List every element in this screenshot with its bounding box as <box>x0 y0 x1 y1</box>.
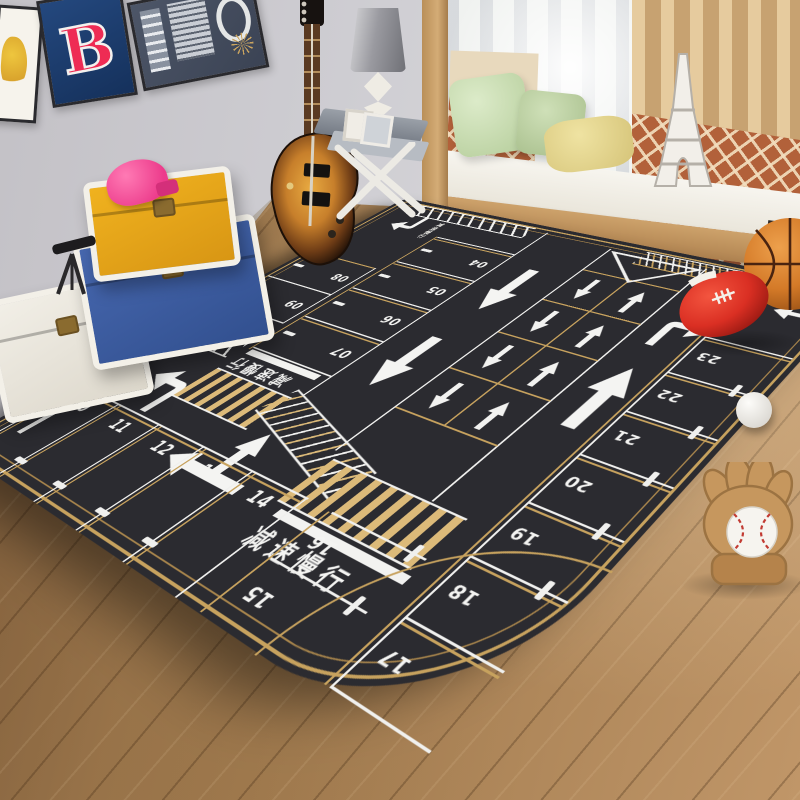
table-x-legs <box>324 142 432 220</box>
baseball <box>724 504 780 560</box>
poster-shape <box>139 8 170 73</box>
toy-telescope <box>34 232 110 298</box>
lamp-shade <box>350 8 406 72</box>
poster-shape <box>167 0 215 61</box>
toy-football <box>672 262 776 346</box>
room-photo: B 减速慢行 04 0 <box>0 0 800 800</box>
photo-frame <box>360 112 394 148</box>
poster-letter: B <box>54 7 119 89</box>
red-sox-poster: B <box>36 0 138 108</box>
white-ball <box>736 392 772 428</box>
poster-artwork <box>0 36 29 90</box>
eiffel-tower-figurine <box>652 50 714 192</box>
